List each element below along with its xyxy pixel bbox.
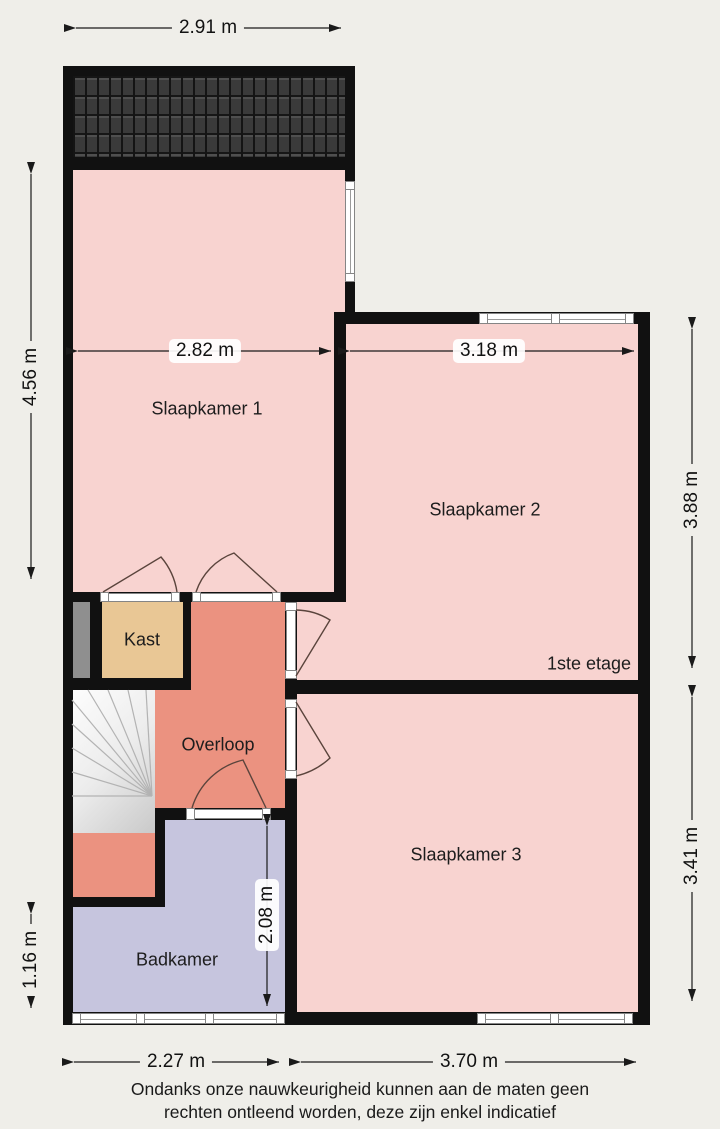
dim-badkamer-height: 2.08 m (255, 879, 279, 951)
stair-treads (72, 690, 152, 796)
dim-left-upper: 4.56 m (19, 341, 43, 413)
dim-right-lower: 3.41 m (680, 820, 704, 892)
door-arc-slaapkamer1 (196, 553, 277, 592)
door-arc-kast (103, 557, 177, 592)
dim-right-upper: 3.88 m (680, 464, 704, 536)
dim-bottom-right: 3.70 m (433, 1050, 505, 1074)
room-label-overloop: Overloop (181, 735, 254, 756)
dimension-lines (31, 28, 692, 1062)
door-arc-slaapkamer2 (296, 610, 330, 676)
room-label-slaapkamer2: Slaapkamer 2 (429, 500, 540, 521)
room-label-slaapkamer1: Slaapkamer 1 (151, 399, 262, 420)
room-label-slaapkamer3: Slaapkamer 3 (410, 845, 521, 866)
door-swings (103, 553, 330, 808)
disclaimer-line-2: rechten ontleend worden, deze zijn enkel… (0, 1101, 720, 1124)
dim-slaapkamer1-width: 2.82 m (169, 339, 241, 363)
dim-slaapkamer2-width: 3.18 m (453, 339, 525, 363)
dim-top-width: 2.91 m (172, 16, 244, 40)
room-label-badkamer: Badkamer (136, 950, 218, 971)
plan-annotations (0, 0, 720, 1129)
floor-plan: 2.91 m 4.56 m 1.16 m 3.88 m 3.41 m 2.82 … (0, 0, 720, 1129)
door-arc-slaapkamer3 (296, 702, 330, 776)
room-label-kast: Kast (124, 630, 160, 651)
dim-bottom-left: 2.27 m (140, 1050, 212, 1074)
disclaimer-line-1: Ondanks onze nauwkeurigheid kunnen aan d… (0, 1078, 720, 1101)
floor-label: 1ste etage (547, 654, 631, 675)
door-arc-badkamer (192, 760, 266, 808)
dim-left-lower: 1.16 m (19, 924, 43, 996)
